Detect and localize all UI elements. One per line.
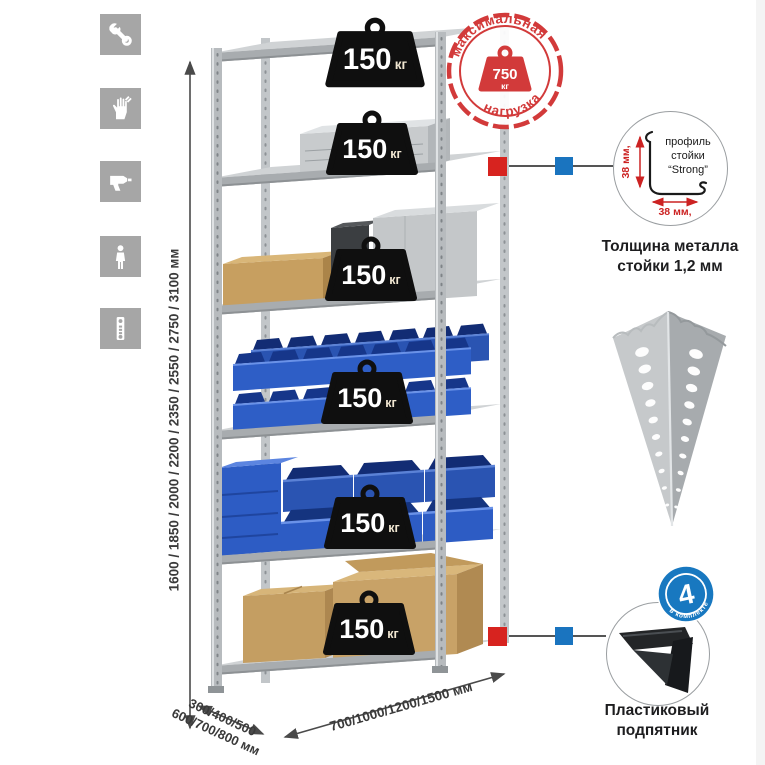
svg-text:стойки: стойки [671, 150, 705, 162]
svg-text:кг: кг [501, 81, 509, 91]
height-dimension-label: 1600 / 1850 / 2000 / 2200 / 2350 / 2550 … [167, 249, 182, 592]
included-count-badge: 4 в комплекте [656, 564, 716, 624]
marker-blue-profile [555, 157, 573, 175]
marker-red-foot [488, 627, 507, 646]
max-load-stamp: максимальная нагрузка 750 кг [443, 9, 567, 133]
svg-text:38 мм,: 38 мм, [658, 206, 691, 218]
profile-detail-circle: 38 мм, 38 мм, профиль стойки “Strong” [613, 111, 728, 226]
shelving-infographic: 150кг [0, 0, 765, 765]
perforated-upright-photo [600, 302, 740, 530]
foot-caption: Пластиковый подпятник [582, 701, 732, 741]
marker-blue-foot [555, 627, 573, 645]
profile-caption: Толщина металла стойки 1,2 мм [594, 237, 746, 277]
svg-text:38 мм,: 38 мм, [620, 145, 632, 178]
profile-cross-section: 38 мм, 38 мм, профиль стойки “Strong” [614, 112, 727, 225]
svg-text:“Strong”: “Strong” [668, 164, 708, 176]
marker-red-profile [488, 157, 507, 176]
svg-text:профиль: профиль [665, 136, 711, 148]
